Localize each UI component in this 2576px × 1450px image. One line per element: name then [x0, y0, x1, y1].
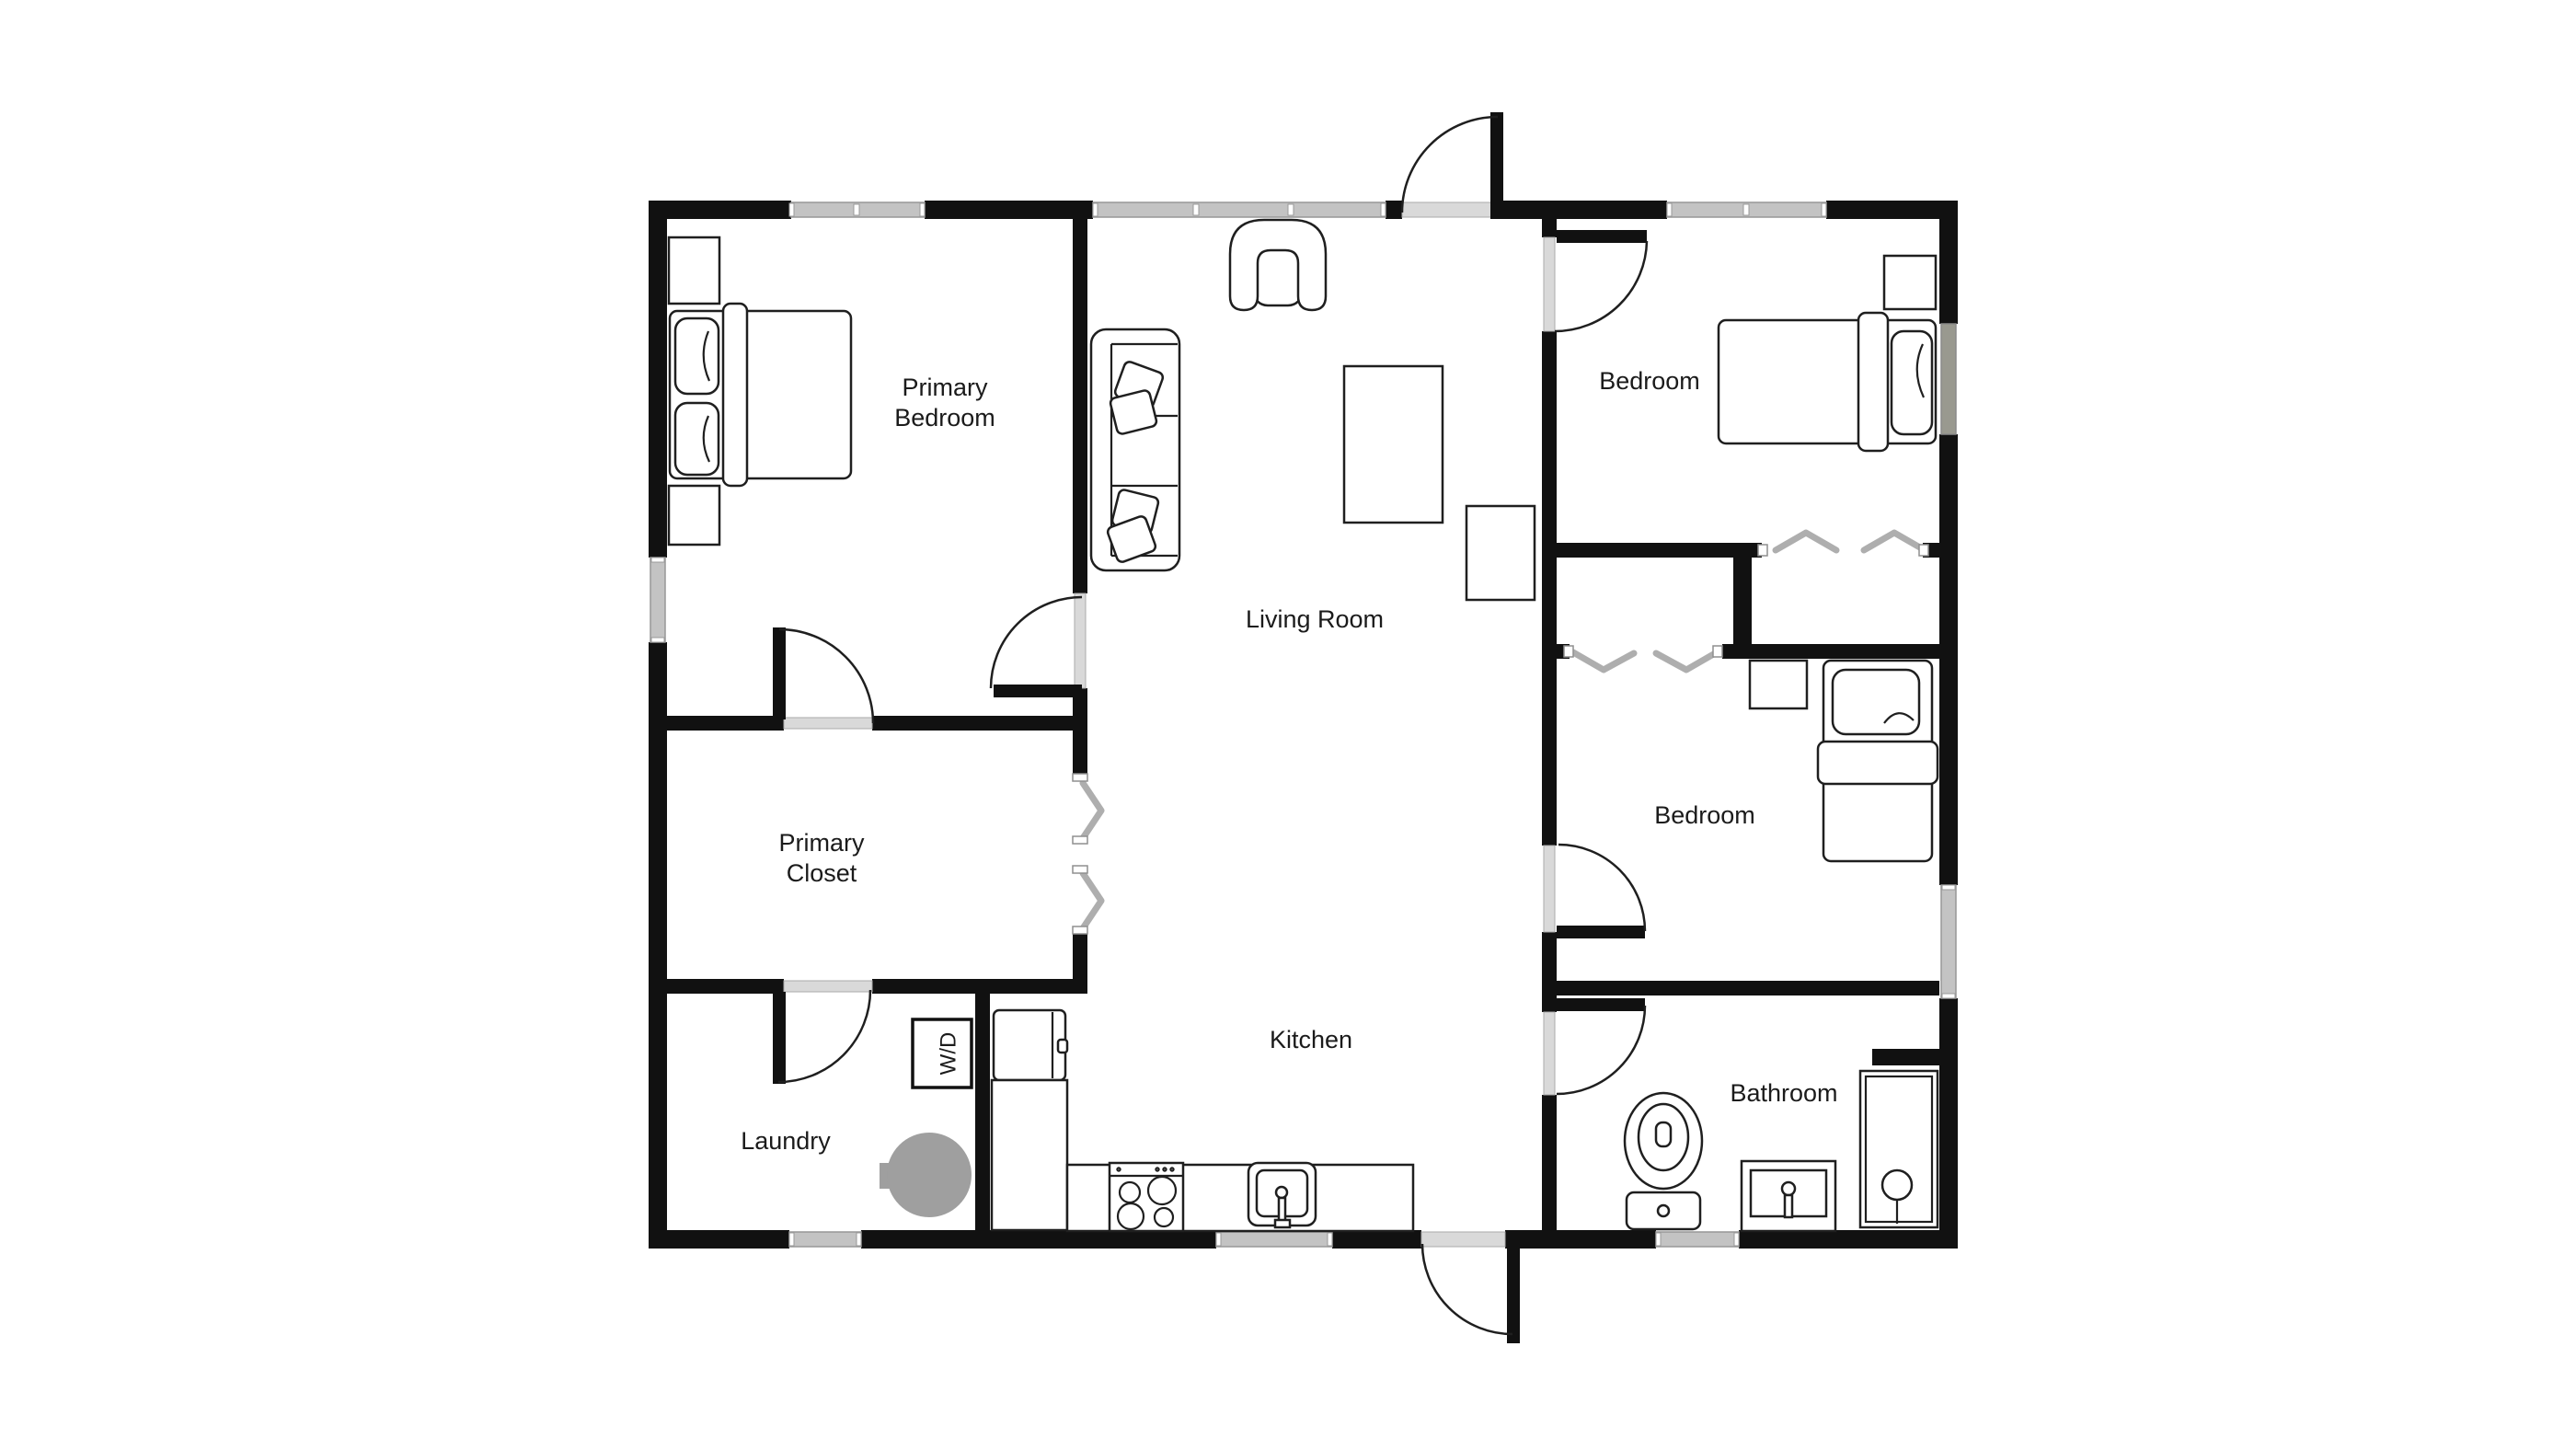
floor-plan: W/D	[0, 0, 2576, 1450]
toilet-icon	[1625, 1093, 1702, 1229]
nightstand-icon	[1884, 256, 1936, 309]
primary-bedroom-furniture	[669, 237, 851, 545]
bifold-closet-hallway	[1073, 774, 1101, 934]
armchair-icon	[1230, 220, 1326, 310]
door-bedroom-top-right	[1555, 230, 1647, 331]
room-label-bedroom-mid-right: Bedroom	[1654, 801, 1755, 829]
sofa-icon	[1091, 329, 1179, 570]
bifold-closet-bedroom-top-right	[1758, 533, 1928, 556]
nightstand-icon	[669, 237, 719, 304]
window	[1941, 885, 1956, 998]
window	[650, 558, 665, 642]
door-primary-closet	[773, 627, 873, 723]
window	[789, 1232, 861, 1247]
window	[1656, 1232, 1739, 1247]
door-bedroom-mid-right	[1557, 845, 1645, 938]
window	[1941, 324, 1956, 434]
room-label-living-room: Living Room	[1246, 605, 1384, 633]
living-room-furniture	[1091, 220, 1535, 600]
pillow-icon	[675, 318, 719, 394]
bedroom-top-right-furniture	[1719, 256, 1936, 451]
side-table-icon	[1466, 506, 1535, 600]
coffee-table-icon	[1344, 366, 1443, 523]
room-label-laundry: Laundry	[741, 1127, 831, 1155]
room-label-kitchen: Kitchen	[1270, 1026, 1352, 1053]
washer-dryer-label: W/D	[936, 1032, 960, 1076]
room-label-primary-bedroom: Bedroom	[894, 404, 995, 432]
window	[1216, 1232, 1332, 1247]
pillow-icon	[1892, 331, 1932, 434]
washer-dryer-icon: W/D	[913, 1019, 972, 1087]
door-rear-kitchen	[1422, 1244, 1520, 1343]
door-laundry	[773, 990, 870, 1084]
door-bathroom	[1557, 998, 1645, 1094]
room-label-bathroom: Bathroom	[1730, 1079, 1837, 1107]
room-label-primary-bedroom: Primary	[903, 374, 988, 401]
bed-icon	[1719, 313, 1936, 451]
shower-icon	[1860, 1071, 1938, 1227]
bed-icon	[670, 304, 851, 486]
kitchen-sink-icon	[1248, 1163, 1316, 1227]
room-labels: Primary Bedroom Bedroom Living Room Prim…	[741, 367, 1837, 1155]
refrigerator-icon	[994, 1010, 1067, 1080]
water-heater-icon	[880, 1133, 972, 1217]
pillow-icon	[675, 403, 719, 475]
bifold-closet-bedroom-mid-right	[1564, 646, 1722, 670]
bed-icon	[1818, 661, 1938, 861]
room-label-primary-closet: Primary	[779, 829, 865, 857]
room-label-primary-closet: Closet	[787, 859, 857, 887]
throw-pillow-icon	[1110, 389, 1157, 434]
room-label-bedroom-top-right: Bedroom	[1599, 367, 1700, 395]
pillow-icon	[1833, 670, 1919, 734]
door-primary-bedroom	[991, 597, 1082, 697]
stove-icon	[1110, 1163, 1183, 1231]
nightstand-icon	[1750, 661, 1807, 708]
kitchen-counter	[992, 1080, 1067, 1230]
laundry-fixtures: W/D	[880, 1019, 972, 1217]
nightstand-icon	[669, 486, 719, 545]
bedroom-mid-right-furniture	[1750, 661, 1938, 861]
vanity-sink-icon	[1742, 1161, 1835, 1231]
window	[1093, 202, 1386, 217]
